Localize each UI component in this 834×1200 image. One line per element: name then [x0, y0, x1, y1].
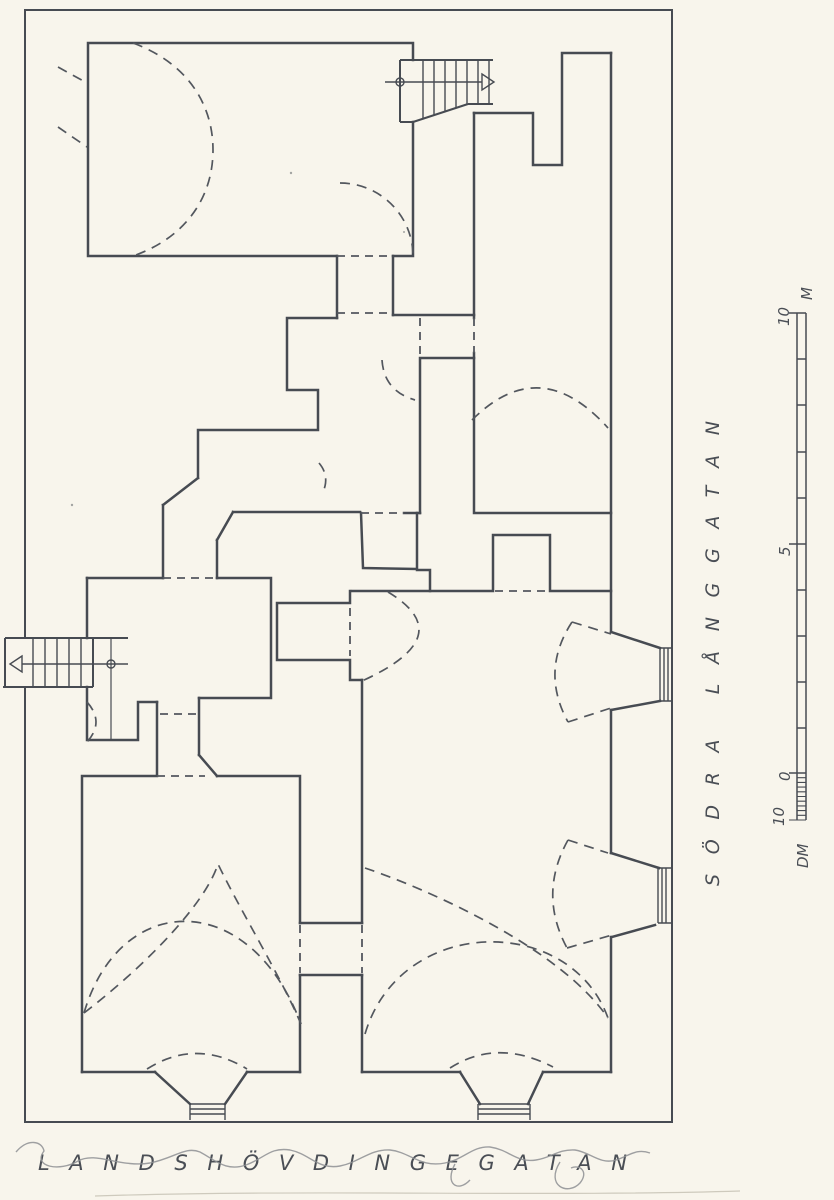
wall-openings-dashed [157, 256, 548, 973]
ink-specks [71, 172, 405, 506]
scale-label-10m: 10 [775, 307, 793, 326]
scale-label-5m: 5 [776, 546, 794, 556]
stair-lower-risers [33, 638, 81, 687]
window-sills [190, 648, 672, 1120]
stair-lower [3, 638, 128, 740]
building-walls [82, 43, 660, 1104]
drawing-sheet: 10 M 5 0 10 DM SÖDRA LÅNGGATAN LANDSHÖVD… [0, 0, 834, 1200]
floor-plan-svg: 10 M 5 0 10 DM SÖDRA LÅNGGATAN LANDSHÖVD… [0, 0, 834, 1200]
vault-arcs-dashed [58, 43, 612, 1069]
street-label-sodra-langgatan: SÖDRA LÅNGGATAN [701, 404, 724, 886]
scale-label-m-unit: M [798, 287, 816, 300]
stair-upper-risers [423, 60, 489, 119]
street-label-landshovdingegatan: LANDSHÖVDINGEGATAN [38, 1150, 643, 1175]
scale-bar-labels: 10 M 5 0 10 DM [770, 287, 816, 868]
scale-bar [789, 313, 806, 820]
scale-label-dm-unit: DM [794, 843, 812, 868]
scale-label-10dm: 10 [770, 807, 788, 826]
plan-border [25, 10, 672, 1122]
scale-label-0: 0 [776, 771, 794, 781]
